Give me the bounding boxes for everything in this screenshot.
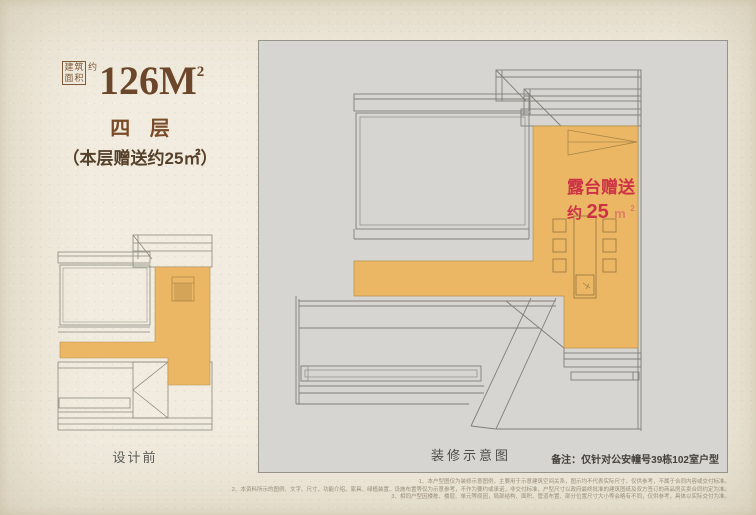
- area-value: 126M2: [99, 52, 204, 101]
- area-superscript: 2: [197, 64, 205, 80]
- disclaimer-line: 3、相同户型因楼栋、楼层、单元等原因，局部结构、面积、管道布置、部分位置尺寸大小…: [210, 494, 730, 502]
- terrace-gift-line2: 约 25 m 2: [567, 201, 635, 223]
- stamp-char: 面: [64, 73, 74, 84]
- building-area-stamp: 建 筑 面 积: [62, 61, 86, 85]
- disclaimer-block: 1、本户型图仅为装修示意图例，主要用于示意建筑空间关系，图示均不代表实际尺寸，仅…: [210, 479, 730, 502]
- approx-label: 约: [88, 60, 97, 73]
- large-plan-panel: 露台赠送 约 25 m 2 装修示意图 备注：仅针对公安幢号39栋102室户型: [258, 40, 728, 473]
- disclaimer-line: 1、本户型图仅为装修示意图例，主要用于示意建筑空间关系，图示均不代表实际尺寸，仅…: [210, 479, 730, 487]
- small-terrace-area: [60, 267, 210, 385]
- stamp-char: 建: [64, 62, 74, 73]
- floor-title: 四 层: [40, 112, 240, 141]
- small-floor-plan: [50, 228, 220, 438]
- small-plan-caption: 设计前: [50, 447, 220, 466]
- remark-note: 备注：仅针对公安幢号39栋102室户型: [551, 451, 719, 466]
- stamp-char: 积: [74, 73, 84, 84]
- terrace-area: [354, 126, 638, 348]
- terrace-unit: m: [614, 206, 626, 221]
- floorplan-marketing-page: 建 筑 面 积 约 126M2 四 层 （本层赠送约25㎡）: [0, 0, 756, 515]
- terrace-area-number: 25: [586, 201, 608, 223]
- area-header: 建 筑 面 积 约 126M2: [62, 52, 204, 101]
- terrace-unit-sup: 2: [630, 204, 635, 213]
- stamp-char: 筑: [74, 62, 84, 73]
- terrace-gift-line1: 露台赠送: [567, 177, 636, 197]
- terrace-approx: 约: [567, 204, 582, 222]
- floor-gift-note: （本层赠送约25㎡）: [5, 144, 275, 169]
- large-floor-plan: 露台赠送 约 25 m 2: [259, 41, 727, 472]
